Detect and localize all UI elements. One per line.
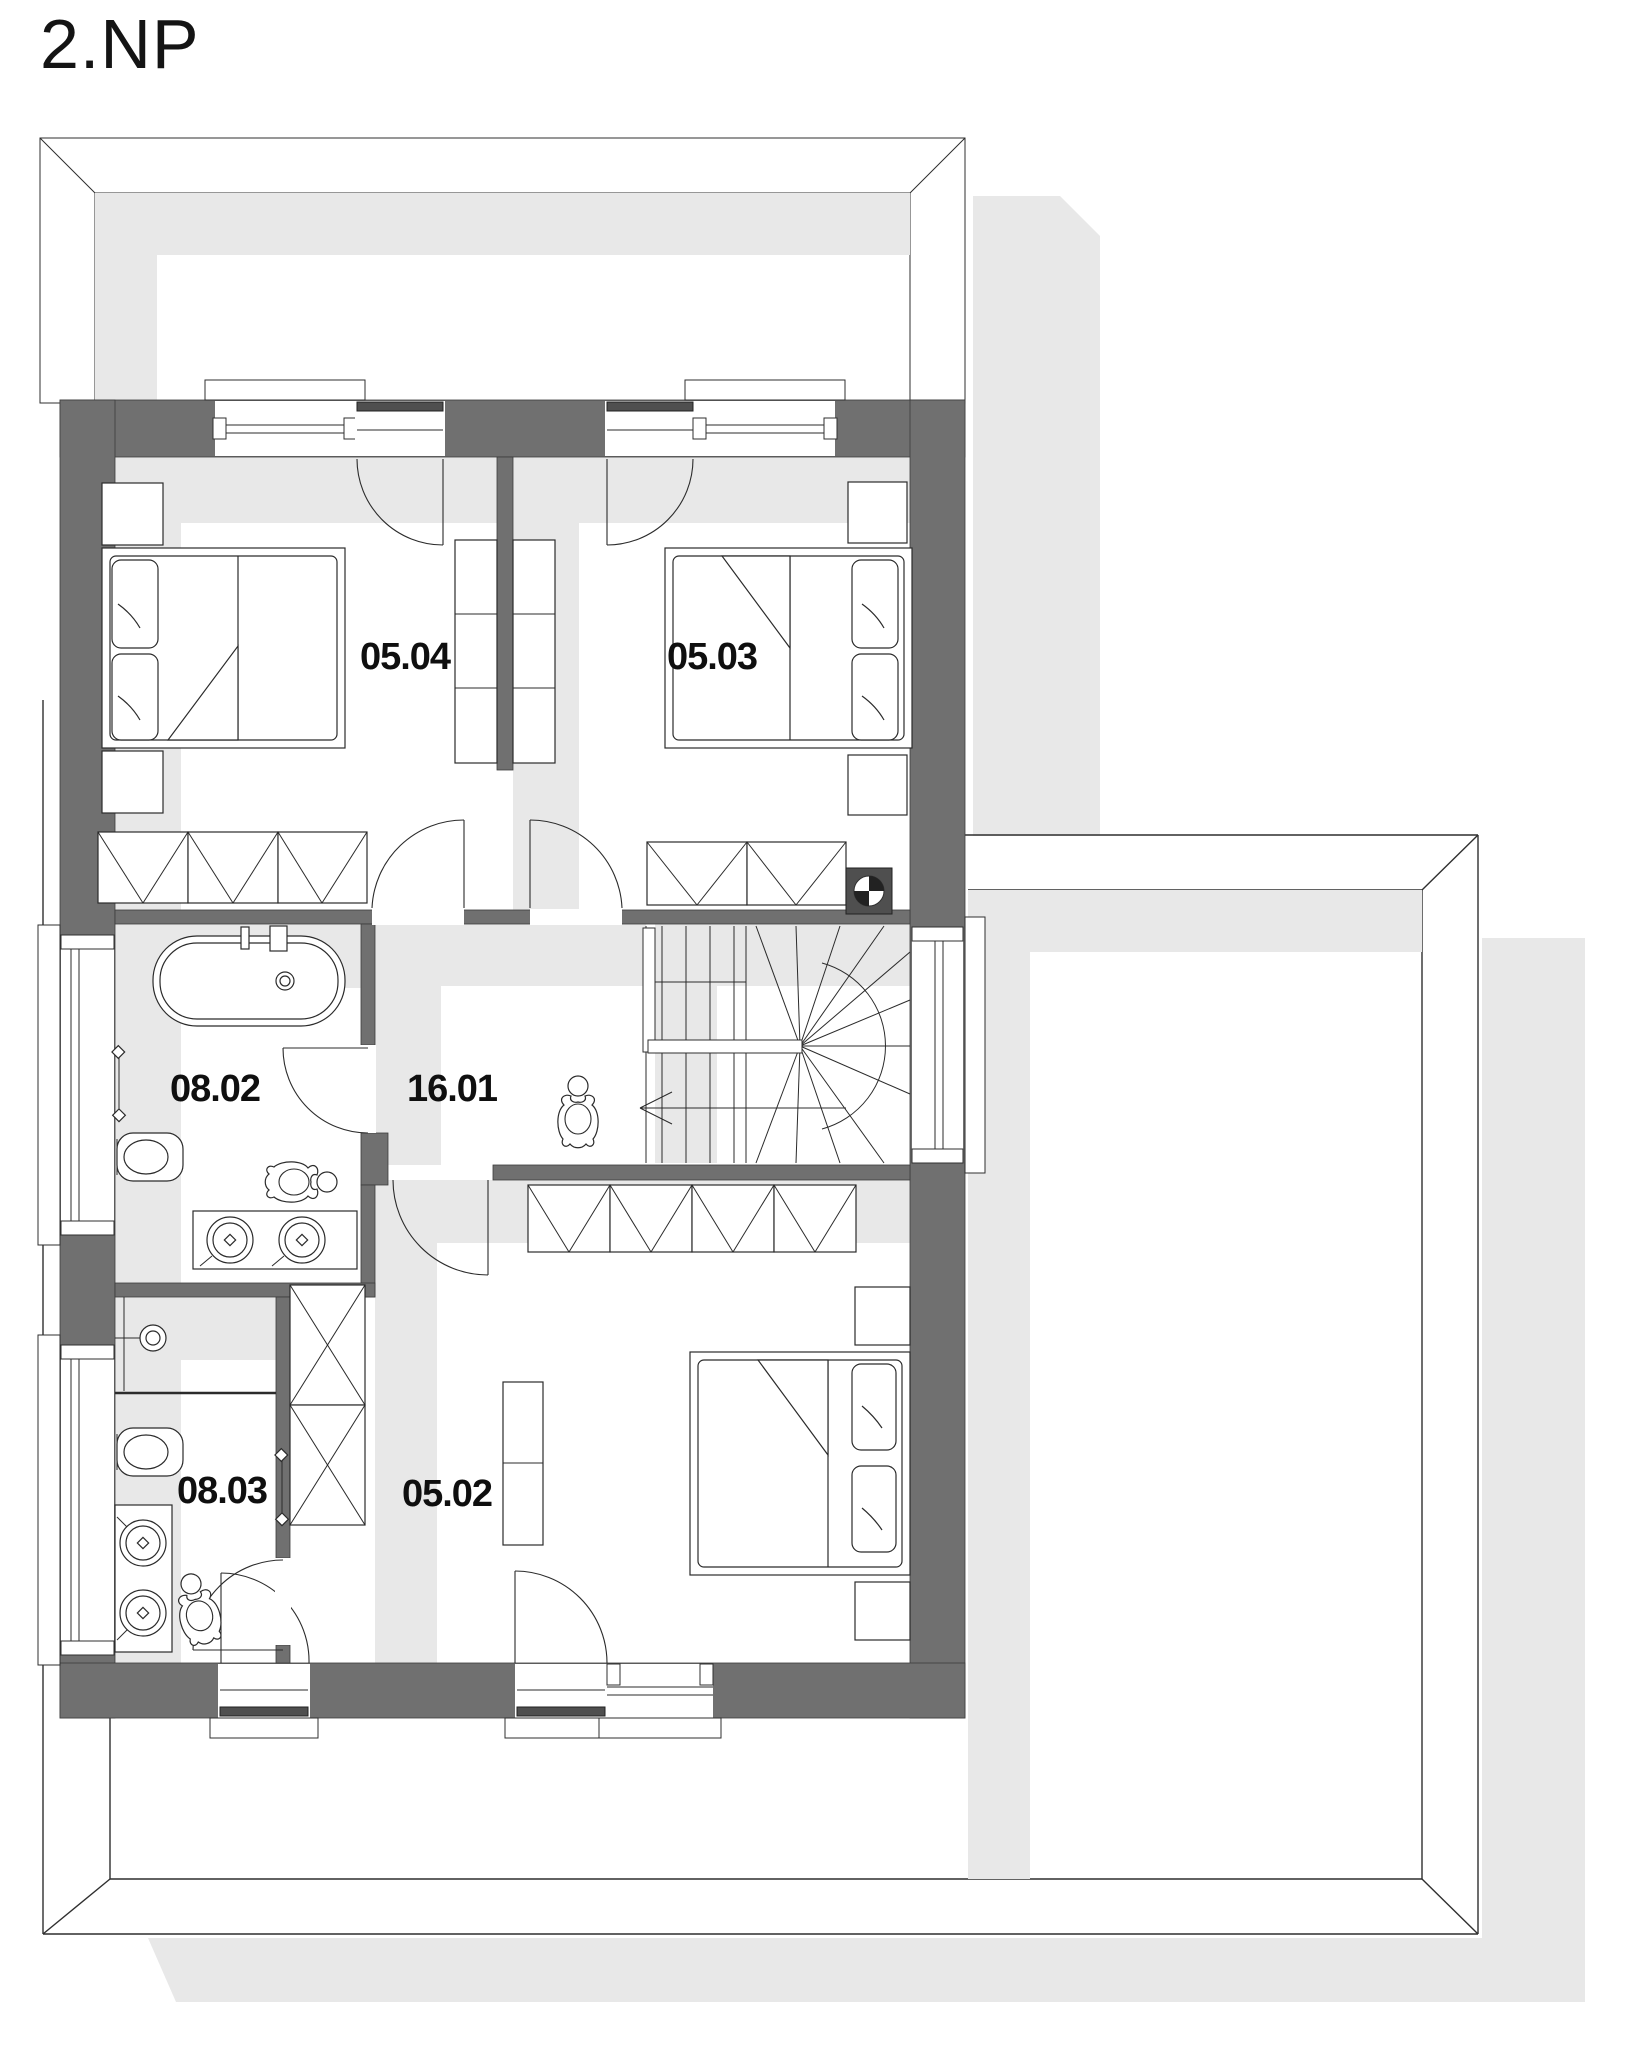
closet-row xyxy=(528,1185,856,1252)
door-0504 xyxy=(372,820,464,925)
nightstand xyxy=(102,751,163,813)
vanity-icon xyxy=(115,1505,172,1652)
person-icon xyxy=(265,1162,337,1202)
cabinet xyxy=(503,1382,543,1545)
exterior-door-bottom-left xyxy=(210,1573,318,1738)
window-bottom-0502 xyxy=(599,1664,721,1738)
window-left-0803 xyxy=(38,1335,114,1665)
page-title: 2.NP xyxy=(40,5,200,83)
room-label-0502: 05.02 xyxy=(402,1473,492,1515)
nightstand xyxy=(848,482,907,543)
toilet-icon xyxy=(117,1133,183,1181)
person-icon xyxy=(558,1076,598,1148)
floor-plan-drawing: 05.04 05.03 08.02 16.01 08.03 05.02 2.NP xyxy=(0,0,1640,2054)
window-stairwell xyxy=(912,917,985,1173)
nightstand xyxy=(855,1287,910,1345)
stair-handrail-left xyxy=(643,928,655,1052)
bed-icon xyxy=(102,548,345,748)
balcony xyxy=(40,138,965,403)
room-label-1601: 16.01 xyxy=(407,1068,498,1110)
room-label-0504: 05.04 xyxy=(360,636,451,678)
floor-plan-page: 05.04 05.03 08.02 16.01 08.03 05.02 2.NP xyxy=(0,0,1640,2054)
closet-row xyxy=(647,842,846,905)
nightstand xyxy=(102,483,163,545)
terrace-shadow xyxy=(968,890,1422,1879)
room-label-0803: 08.03 xyxy=(177,1470,267,1512)
vanity-icon xyxy=(193,1211,357,1269)
door-0802 xyxy=(283,1045,376,1133)
window-left-0802 xyxy=(38,925,114,1245)
bathtub-icon xyxy=(153,926,345,1026)
shelf-column xyxy=(513,540,555,763)
window-top-left xyxy=(205,380,365,456)
nightstand xyxy=(848,755,907,815)
closet-column xyxy=(290,1285,365,1525)
shelf-column xyxy=(455,540,497,763)
toilet-icon xyxy=(117,1428,183,1476)
chimney-icon xyxy=(846,868,892,914)
exterior-door-0502 xyxy=(505,1571,617,1738)
room-label-0503: 05.03 xyxy=(667,636,757,678)
bed-icon xyxy=(690,1352,910,1575)
nightstand xyxy=(855,1582,910,1640)
closet-row xyxy=(98,832,367,903)
room-label-0802: 08.02 xyxy=(170,1068,260,1110)
stair-handrail-center xyxy=(648,1040,802,1053)
window-top-right xyxy=(685,380,845,456)
